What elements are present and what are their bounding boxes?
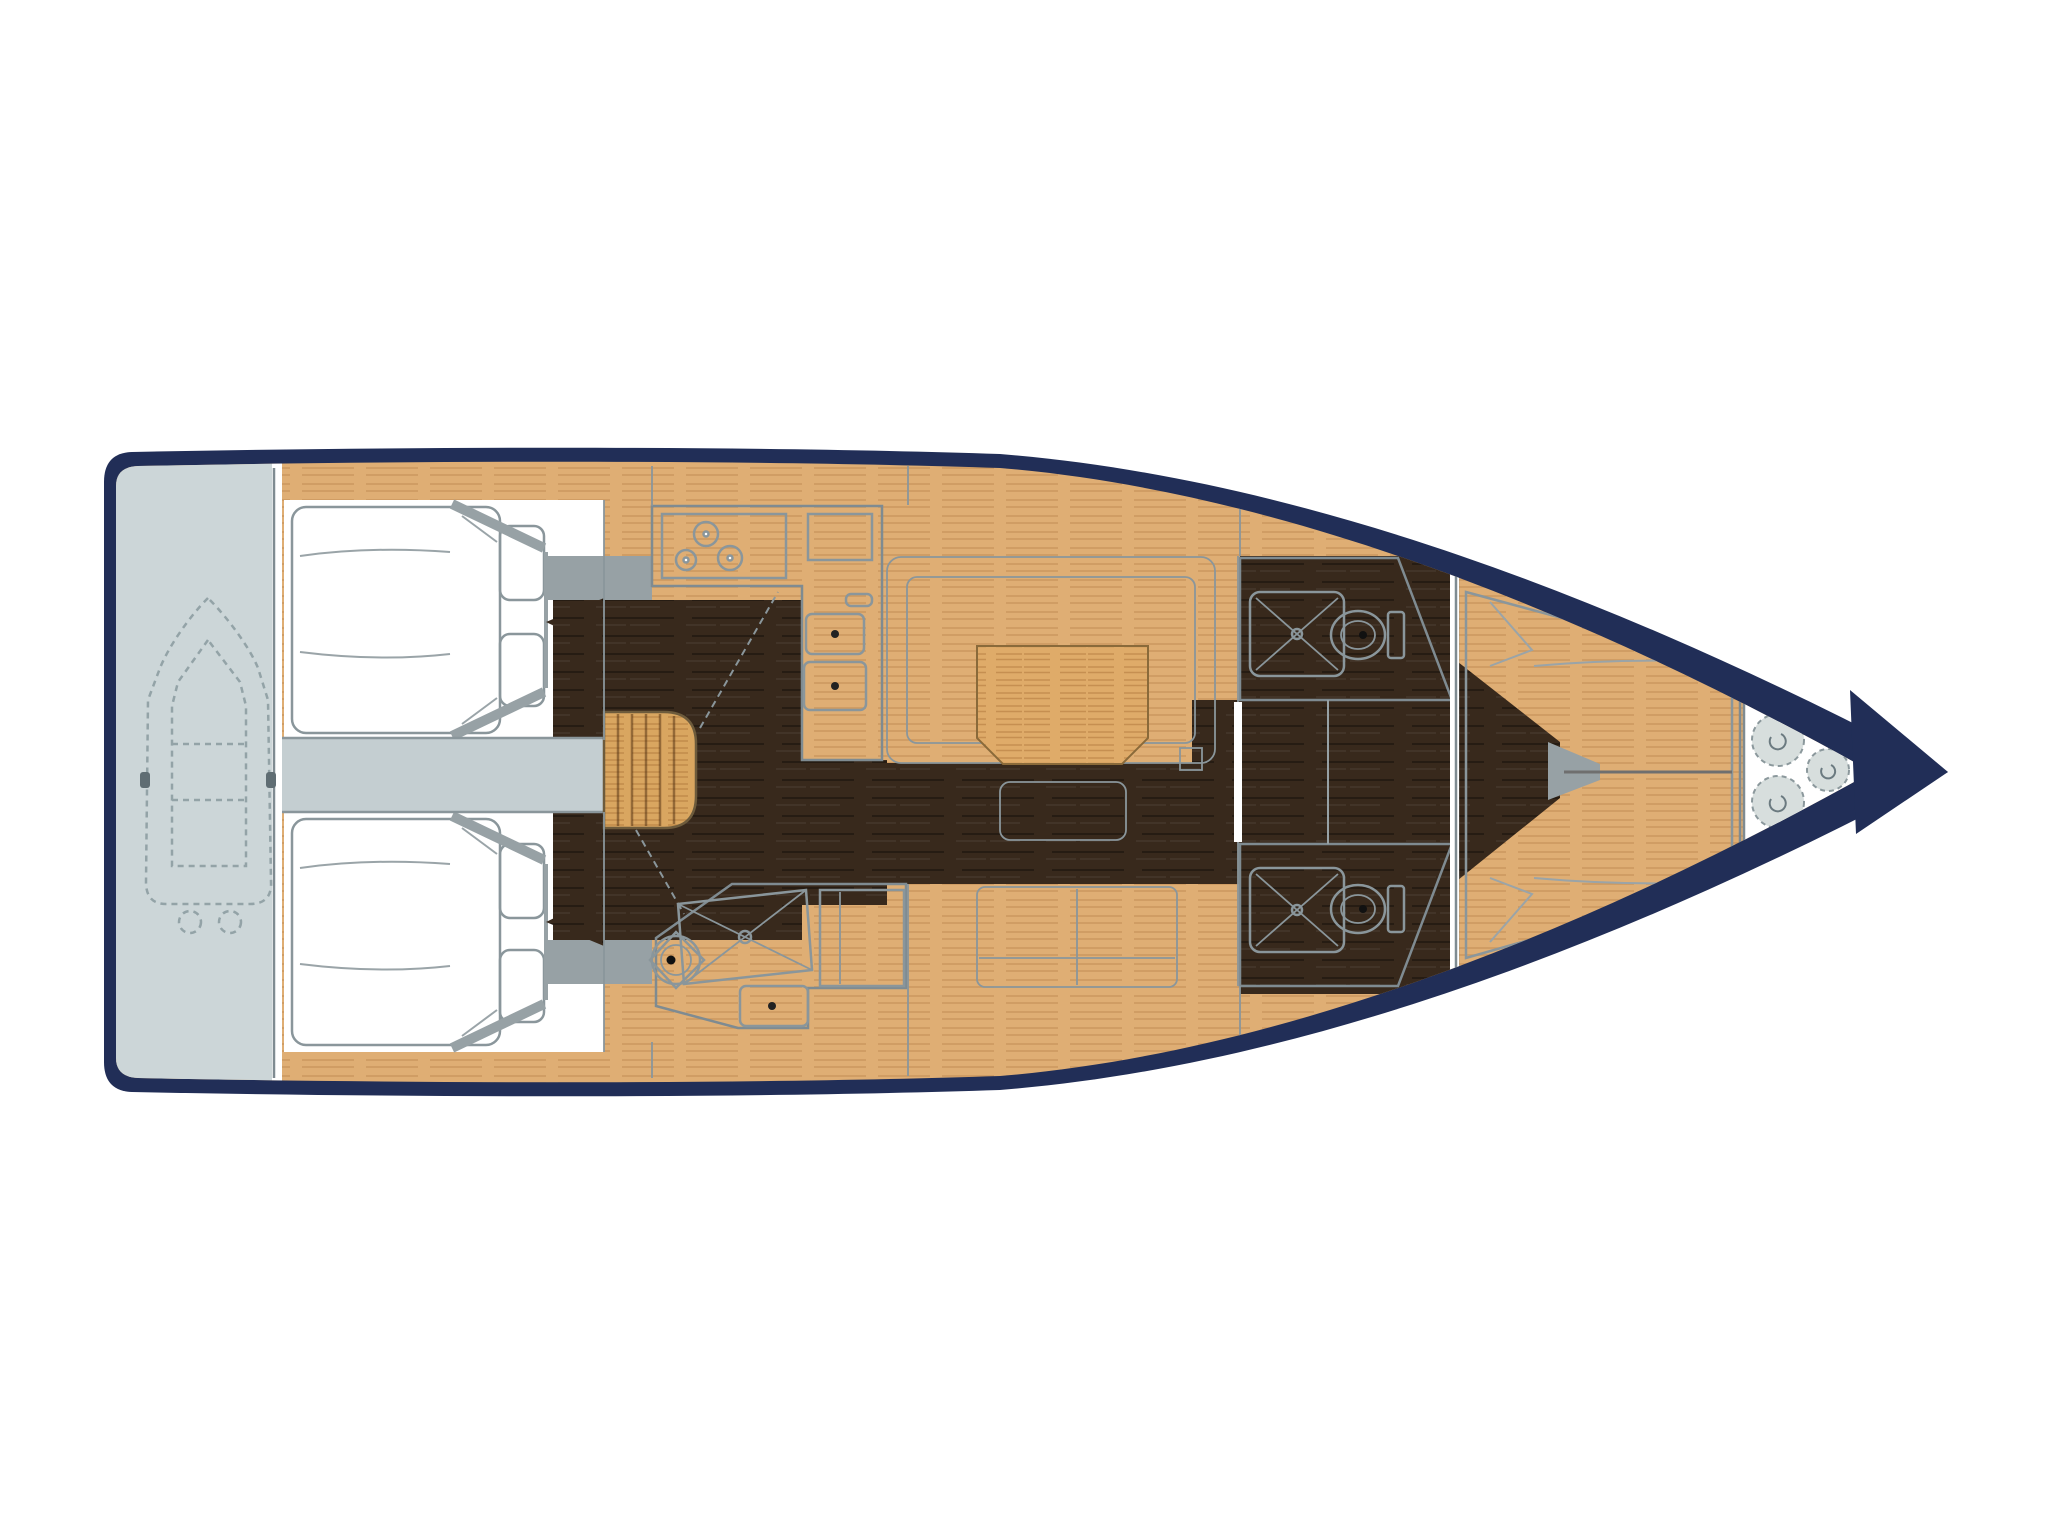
locker: [548, 556, 652, 600]
yacht-floor-plan-page: Sailing yacht interior layout floor plan…: [0, 0, 2048, 1534]
cockpit-passage: [282, 738, 604, 812]
oarlock-icon: [266, 772, 276, 788]
locker: [548, 940, 652, 984]
oarlock-icon: [140, 772, 150, 788]
bow-wedge: [1850, 690, 1948, 834]
door-opening: [1234, 702, 1242, 842]
bulkhead-gap: [1450, 552, 1459, 982]
bathing-platform: [110, 462, 282, 1082]
salon-table: [977, 646, 1148, 764]
yacht-floor-plan: Sailing yacht interior layout floor plan…: [0, 0, 2048, 1534]
companionway-steps: [604, 712, 696, 828]
